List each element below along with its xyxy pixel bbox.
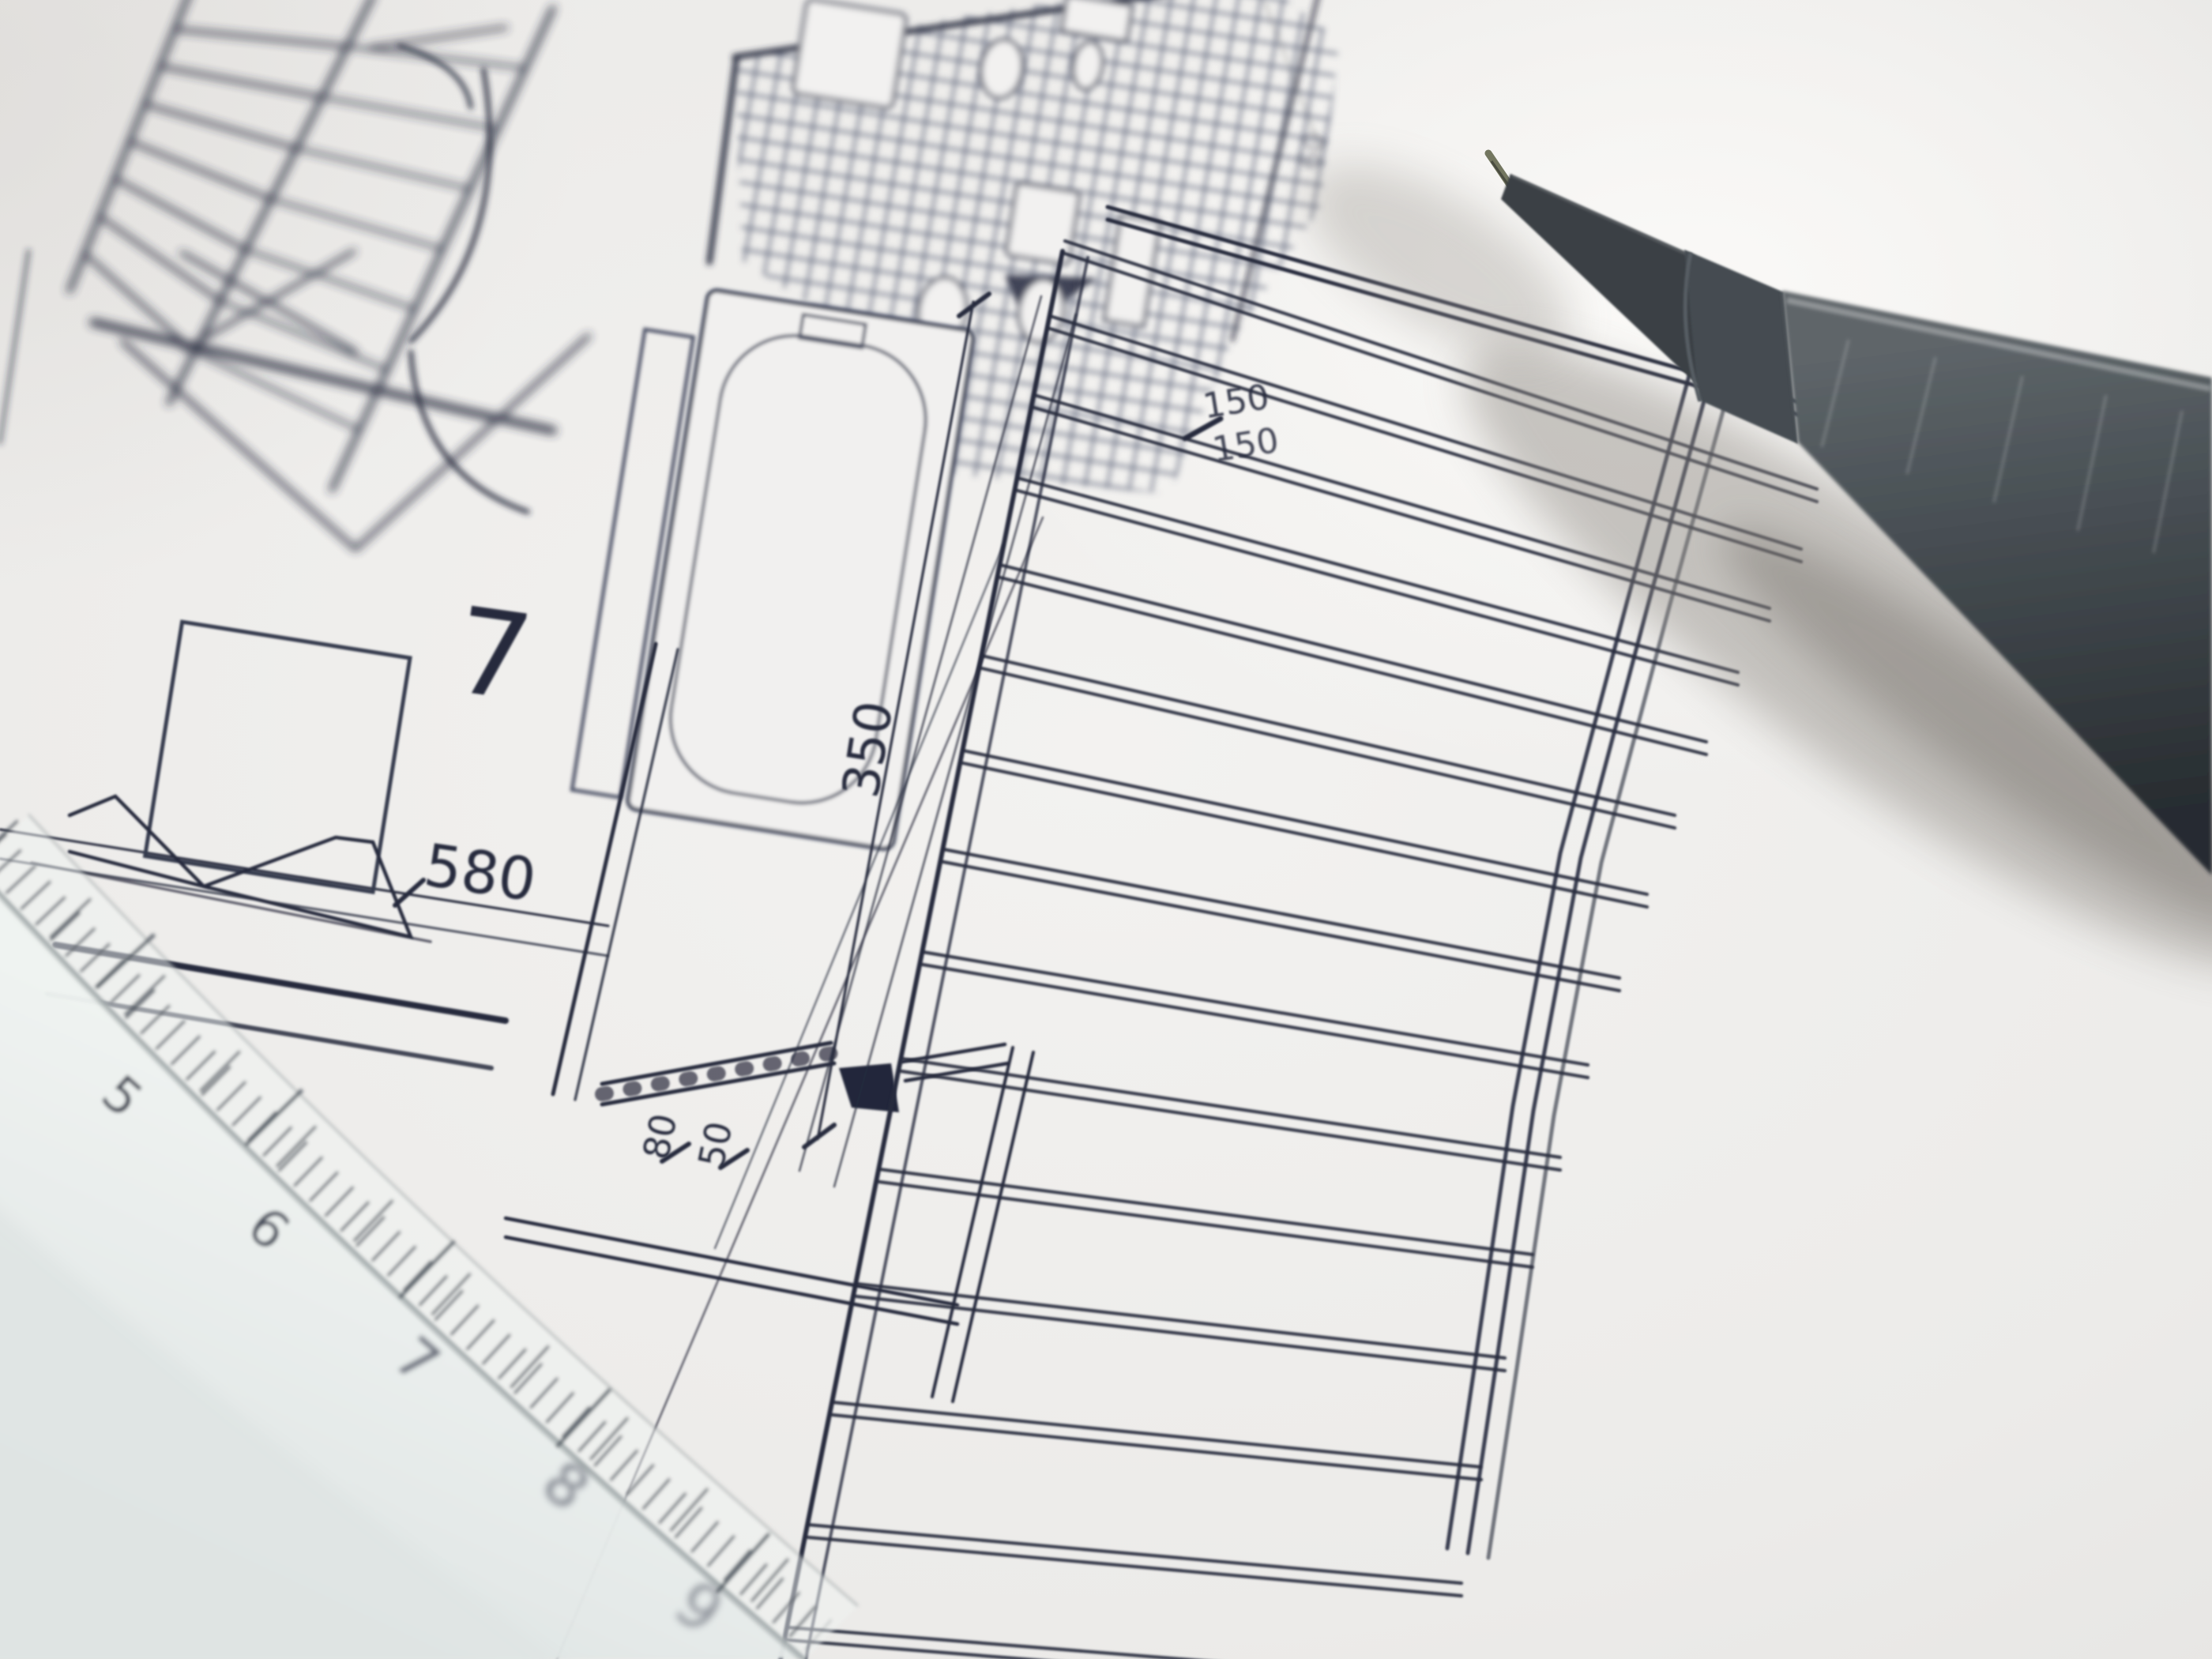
room-number-label: 7 bbox=[446, 582, 540, 729]
dim-150-top-label: 150 bbox=[1200, 377, 1272, 427]
floor-plan-photo: 7 580 350 80 50 150 150 60 bbox=[0, 0, 2212, 1659]
dim-50-label: 50 bbox=[690, 1118, 741, 1171]
dim-580-label: 580 bbox=[419, 831, 540, 915]
door-arcs bbox=[0, 46, 528, 512]
dim-80-label: 80 bbox=[635, 1110, 686, 1163]
dim-60-faint-label: 60 bbox=[1292, 129, 1334, 173]
staircase bbox=[70, 0, 589, 549]
photo-scene: 7 580 350 80 50 150 150 60 bbox=[0, 0, 2212, 1659]
